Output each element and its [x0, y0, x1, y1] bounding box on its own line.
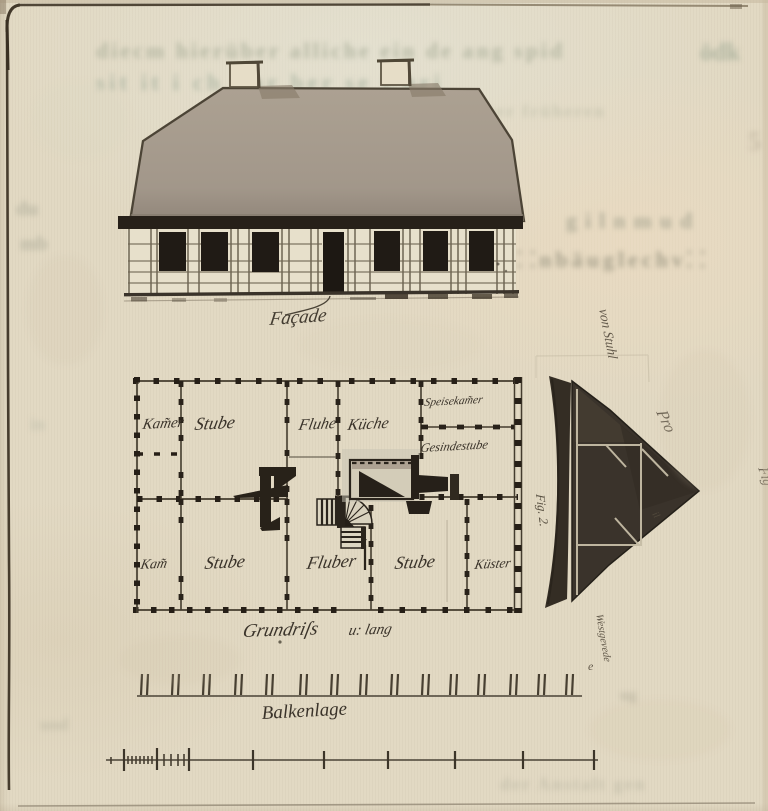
svg-text:Grundriſs: Grundriſs	[241, 619, 320, 642]
svg-text:⸬nbäuglechv⸬: ⸬nbäuglechv⸬	[517, 247, 709, 272]
svg-text:Fluber: Fluber	[304, 550, 359, 573]
svg-text:5: 5	[748, 127, 761, 156]
svg-text:Küche: Küche	[345, 414, 390, 434]
svg-text:in: in	[30, 414, 45, 434]
svg-text:Speisekam̃er: Speisekam̃er	[423, 393, 484, 409]
svg-text:der Anstalt gen: der Anstalt gen	[500, 774, 647, 794]
svg-text:Façade: Façade	[267, 305, 328, 330]
svg-text:Kam̃er: Kam̃er	[140, 414, 185, 433]
svg-text:Fluhe: Fluhe	[296, 414, 338, 434]
svg-text:Kam̃: Kam̃	[138, 556, 168, 573]
svg-text:e: e	[588, 659, 594, 673]
svg-text:du: du	[16, 198, 38, 220]
svg-text:Balkenlage: Balkenlage	[261, 699, 347, 724]
svg-text:mb: mb	[20, 233, 48, 255]
svg-text:Küster: Küster	[472, 555, 512, 572]
svg-text:u: lang: u: lang	[347, 621, 394, 639]
svg-text:ödk: ödk	[700, 39, 740, 66]
svg-text:Westgevede: Westgevede	[593, 614, 613, 662]
svg-text:diecm hierüber alliche ein de: diecm hierüber alliche ein de ang spid	[96, 38, 565, 63]
svg-text:von Stuhl: von Stuhl	[596, 309, 621, 359]
svg-text:Gesindestube: Gesindestube	[419, 437, 489, 454]
svg-text:gilnmud: gilnmud	[566, 208, 700, 233]
svg-text:Stube: Stube	[393, 551, 437, 573]
svg-text:ug: ug	[620, 687, 637, 704]
svg-text:Stube: Stube	[193, 412, 237, 434]
svg-text:und: und	[40, 715, 69, 734]
svg-text:Stube: Stube	[203, 551, 247, 573]
svg-text:Fig. 2.: Fig. 2.	[533, 493, 551, 527]
